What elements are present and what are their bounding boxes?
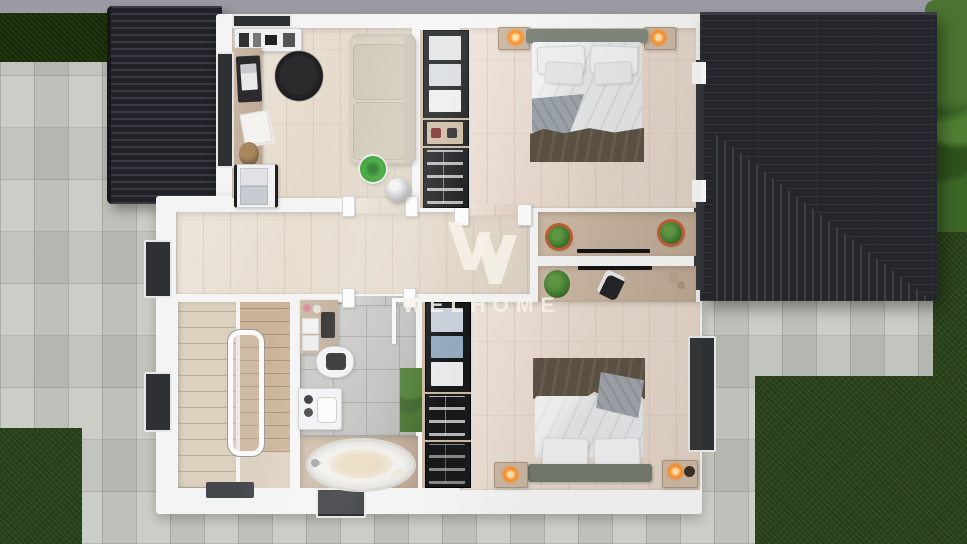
waste-basket	[239, 142, 259, 166]
book-stack-2	[253, 33, 261, 47]
office-top-window	[232, 14, 292, 28]
wardrobe1-linen-2	[429, 64, 461, 86]
office-chair	[274, 50, 324, 102]
bathtub-faucet	[311, 459, 319, 467]
wall-notch-lower	[692, 180, 706, 202]
stairs-glass-railing	[228, 330, 264, 456]
cabinet-drawer-bottom	[240, 186, 268, 205]
wardrobe1-shelf-line-1	[423, 118, 469, 120]
wardrobe2-linen	[431, 362, 463, 386]
office-cabinet	[234, 164, 278, 208]
bedroom1-lamp-right	[649, 28, 668, 47]
welhome-w-logo-icon	[446, 222, 518, 286]
bed2-base	[528, 464, 652, 482]
sofa-cushion-bottom	[353, 102, 405, 160]
console1-plant-right	[660, 222, 682, 244]
console2-decor-small	[677, 281, 685, 289]
toilet-lid	[326, 353, 346, 370]
wardrobe1-hanging-clothes	[427, 150, 463, 204]
bathroom-bottom-window	[316, 488, 366, 518]
roof-ridge-triangle	[700, 131, 937, 301]
hall-window-bay	[144, 240, 172, 298]
office-left-window	[216, 52, 234, 168]
wardrobe1-shelf-line-2	[423, 146, 469, 148]
bedroom2-nightstand-bowl	[684, 466, 695, 477]
watermark: WELHOME	[400, 222, 564, 318]
bathroom-door-jamb-left	[342, 288, 355, 308]
sphere-floor-lamp	[386, 178, 410, 202]
wardrobe1-shoe-pair-black	[447, 128, 457, 138]
bedroom2-tv	[578, 266, 652, 270]
office-door-jamb-right	[405, 196, 418, 217]
sofa-cushion-top	[353, 44, 405, 100]
wall-notch-upper	[692, 62, 706, 84]
bedroom2-lamp-right	[666, 462, 685, 481]
wardrobe1-linen-3	[429, 90, 461, 112]
bathroom-sink	[298, 388, 342, 430]
book-stack-1	[239, 33, 249, 47]
roof-right-tiled	[700, 12, 937, 301]
bathtub-water	[329, 449, 393, 479]
bathtub	[306, 438, 416, 492]
floor-plan-render: WELHOME	[0, 0, 967, 544]
bed1-pillow-front-left	[544, 61, 583, 85]
bathroom-plant	[400, 368, 422, 432]
grass-right-lawn	[755, 376, 967, 544]
towel-stack-2	[302, 335, 319, 351]
bedroom2-lamp-left	[501, 465, 520, 484]
shower-glass-panel	[392, 300, 396, 344]
paper-sheets	[239, 110, 272, 146]
wardrobe2-shoe-shelves	[429, 444, 465, 484]
roof-left-ribbed	[107, 6, 222, 204]
soap-dots	[303, 304, 311, 312]
grass-right-strip	[933, 210, 967, 380]
wardrobe1-shoe-pair-red	[431, 128, 441, 138]
bedroom1-lamp-left	[506, 28, 525, 47]
bed1-pillow-front-right	[593, 61, 632, 85]
counter-tray	[321, 312, 335, 338]
bedroom1-wardrobe	[420, 30, 471, 208]
bedroom2-right-window	[688, 336, 716, 452]
sink-basin	[317, 397, 337, 423]
wardrobe2-shelf-line-1	[425, 392, 471, 394]
sink-faucet	[304, 395, 313, 404]
wardrobe2-clothes-upper	[429, 396, 465, 436]
wardrobe2-shelf-line-2	[425, 440, 471, 442]
wardrobe1-linen-1	[429, 36, 461, 60]
bedroom2-wardrobe	[422, 302, 473, 488]
wardrobe2-box-blue-dark	[431, 336, 463, 358]
bed1-headboard	[526, 29, 648, 43]
watermark-brand-text: WELHOME	[403, 294, 562, 318]
office-door-jamb-left	[342, 196, 355, 217]
book-stack-3	[265, 35, 277, 45]
office-sofa	[350, 34, 416, 164]
grass-bottom-left	[0, 428, 82, 544]
toilet	[316, 346, 354, 378]
cabinet-drawer-top	[240, 168, 268, 186]
stairs-window-bay	[144, 372, 172, 432]
towel-stack-1	[302, 318, 319, 334]
green-stool	[360, 156, 386, 182]
book-stack-4	[283, 33, 295, 47]
laptop	[240, 63, 258, 90]
sofa-backrest	[404, 36, 414, 162]
bedroom1-door-opening	[468, 204, 518, 216]
bedroom1-tv	[577, 249, 650, 253]
stairs-doormat	[206, 482, 254, 498]
bed1-foot-blanket	[530, 126, 644, 162]
hedge-top-left	[0, 13, 107, 62]
